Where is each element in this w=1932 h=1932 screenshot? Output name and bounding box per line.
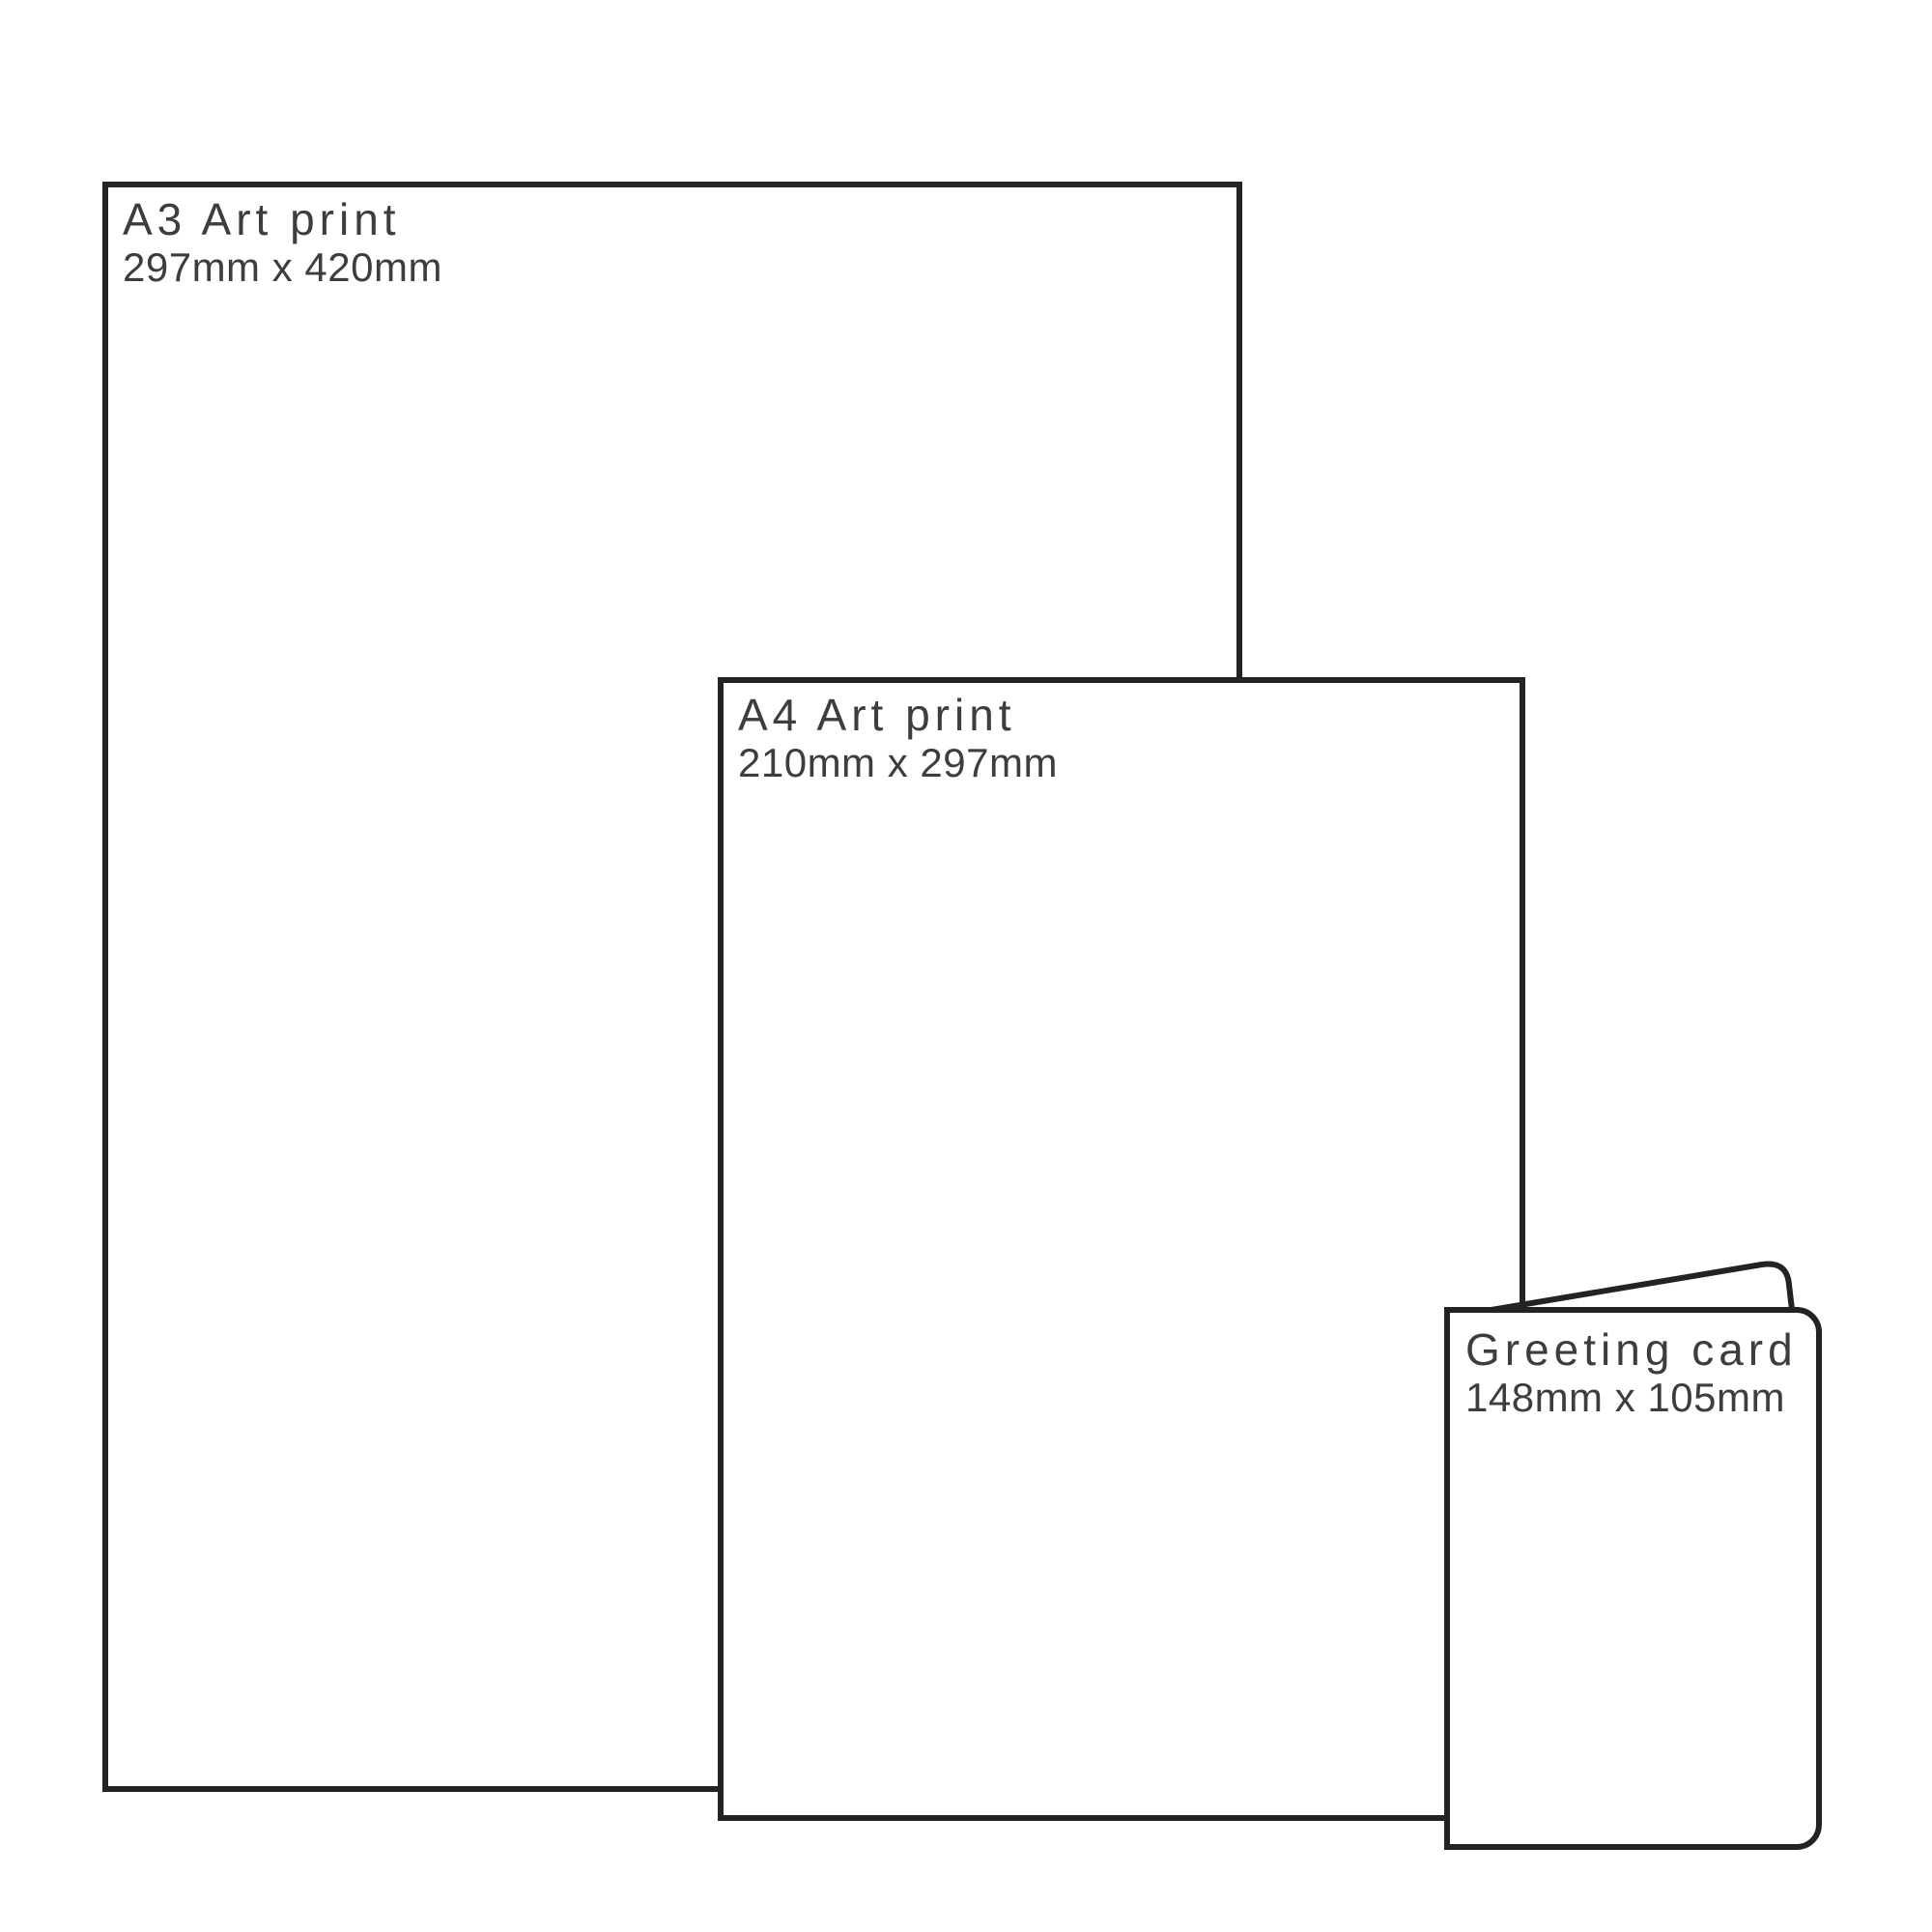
- a3-print-title: A3 Art print: [123, 195, 1236, 243]
- greeting-card-box: Greeting card 148mm x 105mm: [1444, 1307, 1822, 1850]
- a3-print-label: A3 Art print 297mm x 420mm: [108, 187, 1236, 290]
- a4-print-dimensions: 210mm x 297mm: [738, 741, 1520, 785]
- greeting-card-label: Greeting card 148mm x 105mm: [1450, 1313, 1816, 1420]
- greeting-card-dimensions: 148mm x 105mm: [1465, 1376, 1816, 1420]
- a4-print-title: A4 Art print: [738, 691, 1520, 739]
- a4-print-label: A4 Art print 210mm x 297mm: [724, 683, 1520, 785]
- size-comparison-diagram: A3 Art print 297mm x 420mm A4 Art print …: [0, 0, 1932, 1932]
- a3-print-dimensions: 297mm x 420mm: [123, 245, 1236, 290]
- greeting-card-title: Greeting card: [1465, 1325, 1816, 1374]
